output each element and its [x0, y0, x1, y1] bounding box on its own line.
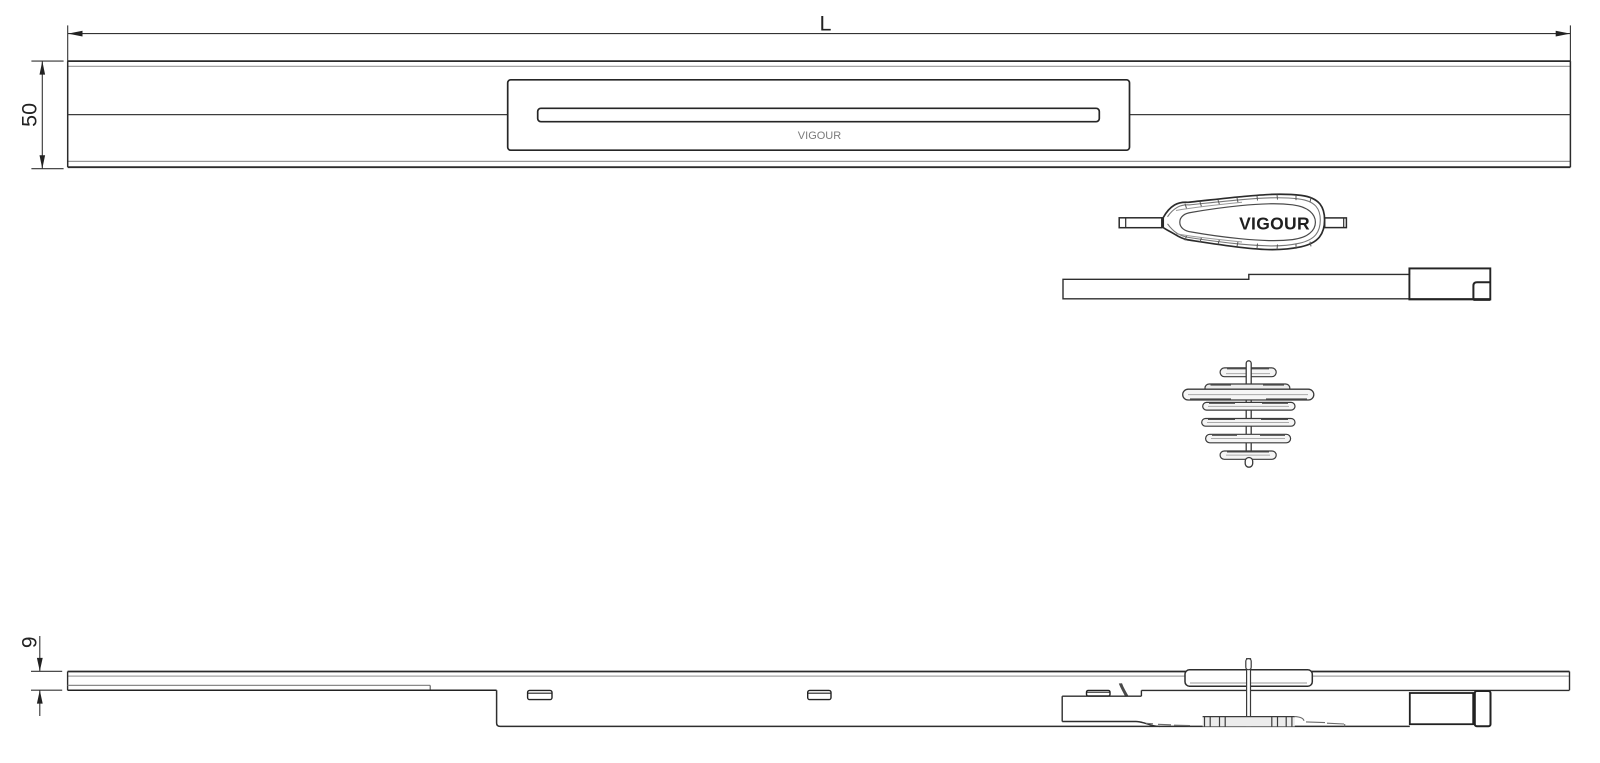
svg-text:50: 50 — [18, 103, 42, 127]
svg-text:VIGOUR: VIGOUR — [798, 130, 841, 142]
svg-text:9: 9 — [19, 636, 42, 648]
svg-text:VIGOUR: VIGOUR — [1239, 214, 1310, 234]
svg-text:L: L — [820, 12, 832, 36]
